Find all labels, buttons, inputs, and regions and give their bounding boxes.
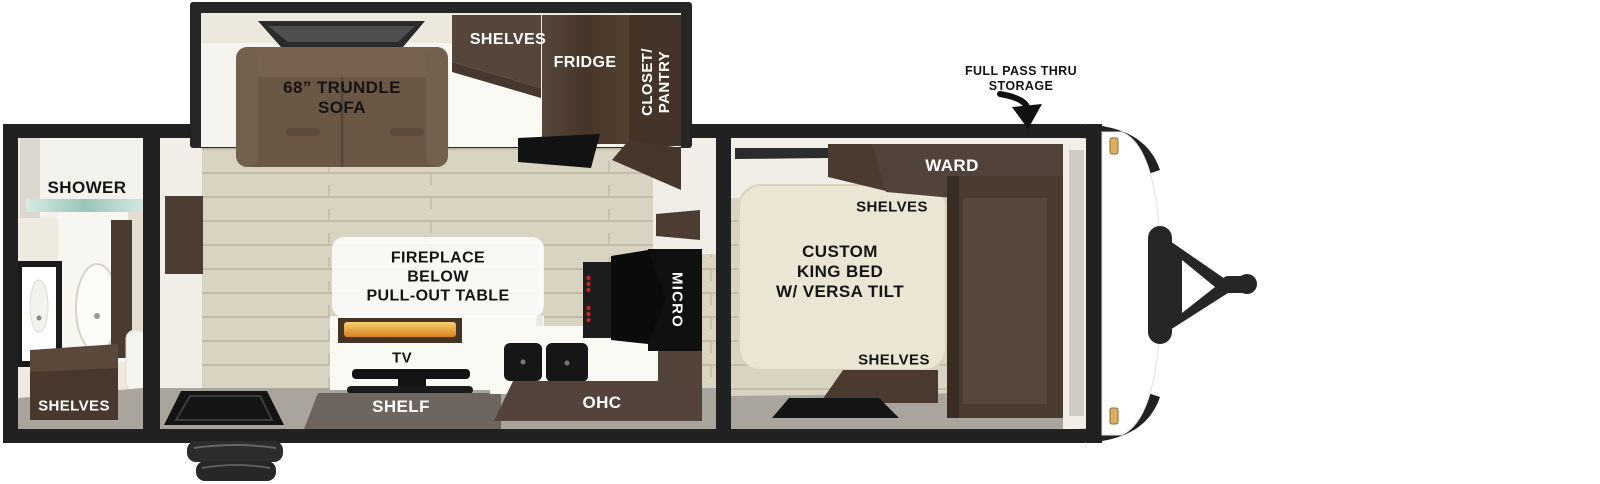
ohc-label: OHC [583,393,622,413]
marker-light-bottom [1110,408,1118,424]
ward-label: WARD [925,156,979,176]
bed-label: CUSTOM KING BED W/ VERSA TILT [776,242,904,302]
wall-bedroom-divider [716,124,731,443]
shelf-label: SHELF [372,397,430,417]
wall-bath-divider [143,124,160,443]
fireplace-label: FIREPLACE BELOW PULL-OUT TABLE [366,249,509,306]
marker-light-top [1110,138,1118,154]
pass-thru-storage-label: FULL PASS THRU STORAGE [965,64,1077,94]
wall-top-right [690,124,1085,138]
bedroom-mat [772,398,899,418]
fridge [542,15,629,144]
fireplace-flame [344,322,456,337]
tv-label: TV [392,349,412,366]
range [583,262,612,338]
shower-label: SHOWER [48,178,127,198]
wall-front [1086,124,1102,443]
shower-glass-door [26,199,143,212]
kitchen-shelves-label: SHELVES [470,31,546,49]
closet-pantry-label: CLOSET/ PANTRY [639,48,674,116]
bedroom-shelves-bottom-label: SHELVES [858,351,930,368]
range-hood [518,134,600,168]
tv-screen [352,369,470,379]
bath-shelves-label: SHELVES [38,397,110,414]
wall-rear [3,124,18,443]
wall-top-left [3,124,191,138]
bedroom-shelves-top-label: SHELVES [856,198,928,215]
hitch-coupler [1237,274,1257,294]
micro-label: MICRO [668,272,685,328]
sofa-label: 68” TRUNDLE SOFA [283,78,401,118]
pass-thru-storage-area [1069,150,1084,416]
hitch-mount [1148,226,1172,344]
floorplan-canvas: 68” TRUNDLE SOFA SHELVES FRIDGE CLOSET/ … [0,0,1600,484]
wall-bottom [3,429,1085,443]
entry-door-panel [165,196,203,274]
fridge-label: FRIDGE [554,54,617,72]
bedroom-window [735,148,830,159]
